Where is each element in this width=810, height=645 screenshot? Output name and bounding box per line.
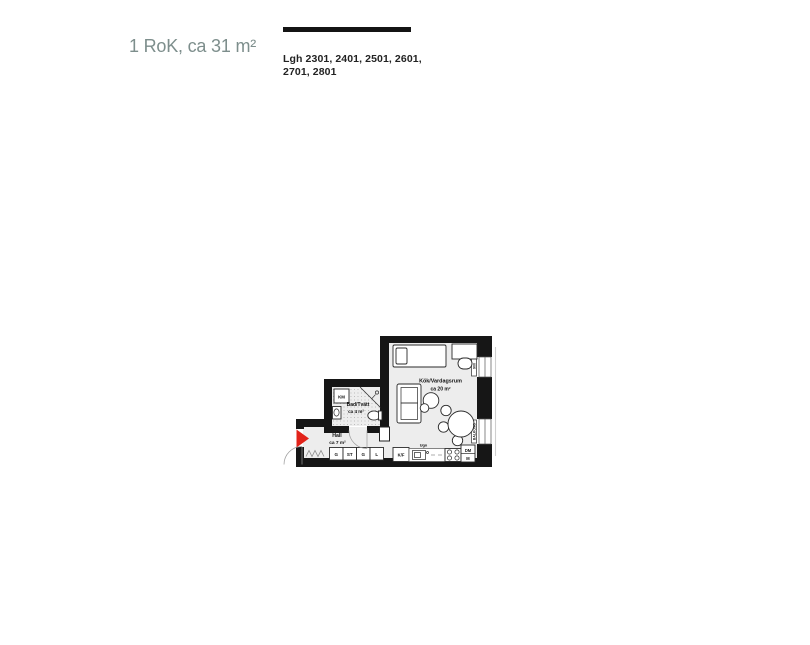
wall-right-upper (477, 336, 492, 357)
toilet-cistern (379, 411, 383, 420)
wardrobe-g1-label: G (334, 452, 338, 457)
livingroom-area: ca 20 m² (430, 387, 450, 393)
floorplan-drawing: Kök/Vardagsrum ca 20 m² Bad/Tvätt ca 4 m… (0, 0, 810, 645)
desk-chair (458, 358, 472, 369)
wall-bathroom-bottom-left (324, 426, 349, 433)
dining-chair-1 (441, 405, 451, 415)
bathroom-label: Bad/Tvätt (347, 402, 370, 408)
desk (452, 344, 477, 359)
oven-label: Ugn (420, 442, 428, 447)
wardrobe-g2-label: G (361, 452, 365, 457)
bed-pillow (396, 348, 407, 364)
window-top-label: 900 (472, 363, 476, 369)
wall-hall-left-upper (296, 419, 304, 429)
side-stool (420, 404, 429, 413)
washer-label: KM (338, 395, 345, 400)
micro-label: M (466, 456, 470, 461)
cleaning-closet-label: ST (347, 452, 353, 457)
bathroom-area: ca 4 m² (348, 409, 364, 414)
hall-area: ca 7 m² (329, 440, 346, 446)
balcony-label: BALKONG (472, 423, 476, 441)
wall-hall-left-lower (296, 447, 304, 458)
dining-chair-2 (438, 422, 448, 432)
dining-table (448, 411, 474, 437)
wall-right-mid (477, 377, 492, 419)
floorplan-page: 1 RoK, ca 31 m² Lgh 2301, 2401, 2501, 26… (0, 0, 810, 645)
wall-end-cap (380, 427, 390, 441)
wall-top (380, 336, 492, 343)
wall-bathroom-top (324, 379, 384, 387)
fridge-label: K/F (398, 453, 405, 458)
hall-label: Hall (332, 433, 342, 439)
wall-bathroom-bottom-right (367, 426, 381, 433)
livingroom-label: Kök/Vardagsrum (419, 379, 462, 385)
dishwasher-label: DM (465, 448, 472, 453)
linen-closet-label: L (375, 452, 378, 457)
